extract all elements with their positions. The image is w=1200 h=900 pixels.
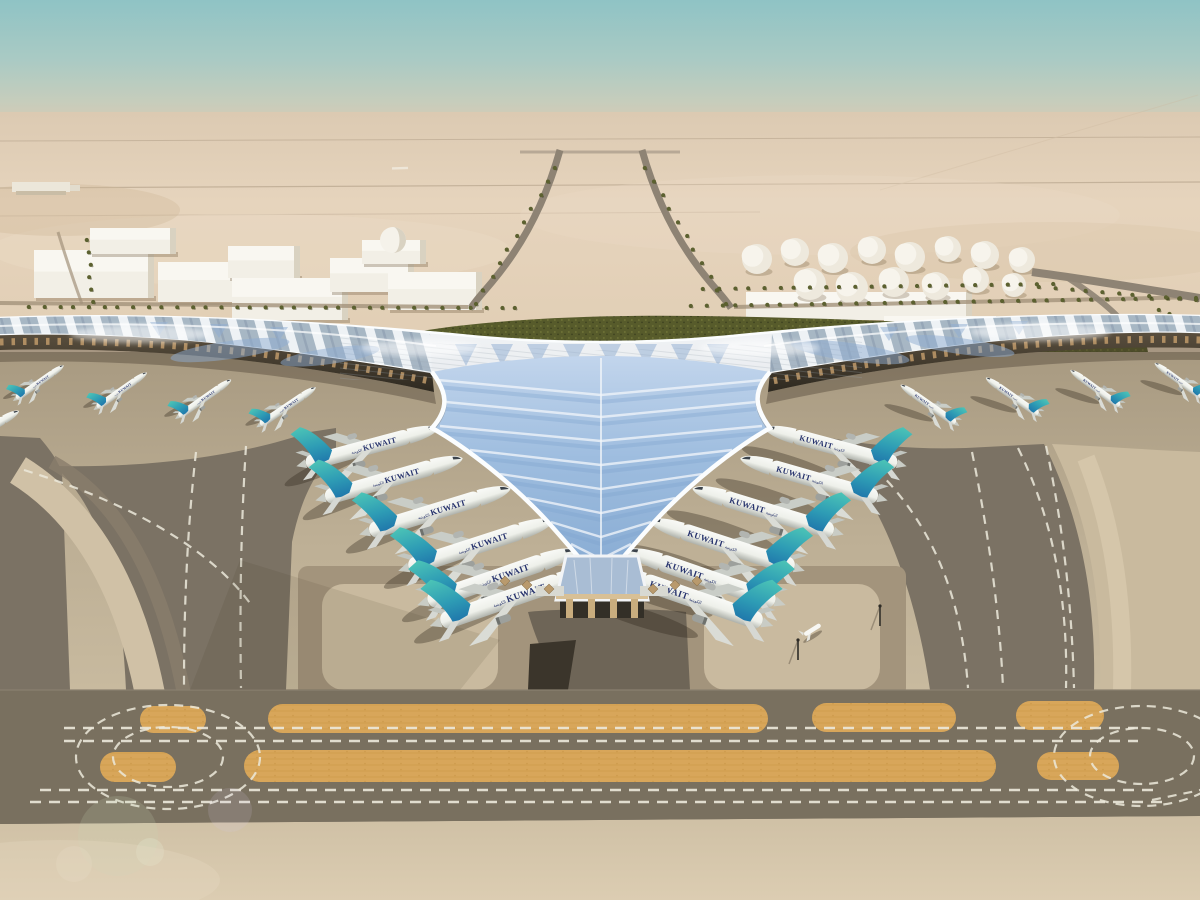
palm-tree	[522, 220, 526, 224]
palm-tree	[928, 284, 932, 288]
palm-tree	[724, 302, 728, 306]
palm-tree	[85, 238, 89, 242]
palm-tree	[484, 306, 488, 310]
palm-tree	[1117, 291, 1121, 295]
palm-tree	[973, 283, 977, 287]
palm-tree	[248, 305, 252, 309]
palm-tree	[794, 302, 798, 306]
palm-tree	[883, 301, 887, 305]
palm-tree	[87, 305, 91, 309]
palm-tree	[1051, 282, 1055, 286]
palm-tree	[899, 284, 903, 288]
palm-tree	[491, 275, 495, 279]
palm-tree	[1018, 282, 1022, 286]
palm-tree	[324, 306, 328, 310]
palm-tree	[643, 166, 647, 170]
warehouse-side	[966, 292, 972, 320]
palm-tree	[89, 288, 93, 292]
palm-tree	[87, 275, 91, 279]
entrance-beam	[556, 594, 648, 599]
tank-top	[963, 268, 982, 287]
palm-tree	[103, 305, 107, 309]
palm-tree	[808, 285, 812, 289]
palm-tree	[440, 306, 444, 310]
palm-tree	[870, 285, 874, 289]
mast-head	[878, 604, 881, 607]
palm-tree	[515, 234, 519, 238]
palm-tree	[481, 288, 485, 292]
palm-tree	[689, 304, 693, 308]
palm-tree	[159, 305, 163, 309]
palm-tree	[972, 299, 976, 303]
palm-tree	[505, 248, 509, 252]
palm-tree	[529, 207, 533, 211]
kuwait-airport-terminal-rendering: الكويتيةKUWAIT KUWAITالكويتية	[0, 0, 1200, 900]
palm-tree	[175, 305, 179, 309]
palm-tree	[219, 305, 223, 309]
palm-tree	[1121, 297, 1125, 301]
tank-top	[1002, 274, 1019, 291]
tank-top	[742, 245, 764, 267]
palm-tree	[1037, 285, 1041, 289]
palm-tree	[709, 275, 713, 279]
palm-tree	[87, 250, 91, 254]
palm-tree	[1054, 286, 1058, 290]
tank-top	[895, 243, 917, 265]
palm-tree	[838, 302, 842, 306]
palm-tree	[89, 263, 93, 267]
palm-tree	[539, 193, 543, 197]
palm-tree	[1060, 298, 1064, 302]
palm-tree	[988, 299, 992, 303]
palm-tree	[71, 305, 75, 309]
palm-tree	[1177, 297, 1181, 301]
palm-tree	[191, 305, 195, 309]
palm-tree	[1032, 298, 1036, 302]
palm-tree	[822, 302, 826, 306]
palm-tree	[469, 306, 473, 310]
palm-tree	[701, 287, 705, 291]
palm-tree	[1044, 298, 1048, 302]
mast-head	[796, 638, 799, 641]
palm-tree	[27, 305, 31, 309]
palm-tree	[676, 220, 680, 224]
palm-tree	[791, 286, 795, 290]
palm-tree	[553, 166, 557, 170]
palm-tree	[279, 305, 283, 309]
dome-building	[380, 227, 406, 253]
palm-tree	[749, 303, 753, 307]
palm-tree	[762, 286, 766, 290]
palm-tree	[911, 300, 915, 304]
palm-tree	[1100, 290, 1104, 294]
palm-tree	[1000, 299, 1004, 303]
tank-top	[858, 237, 878, 257]
palm-tree	[1133, 297, 1137, 301]
palm-tree	[899, 301, 903, 305]
warehouse-roof	[388, 272, 482, 289]
warehouse-side	[148, 250, 154, 298]
airport-aerial-rendering: الكويتيةKUWAIT KUWAITالكويتية	[0, 0, 1200, 900]
palm-tree	[59, 305, 63, 309]
palm-tree	[1070, 288, 1074, 292]
palm-tree	[456, 306, 460, 310]
palm-tree	[147, 305, 151, 309]
tank-top	[781, 239, 801, 259]
palm-tree	[661, 193, 665, 197]
palm-tree	[733, 303, 737, 307]
palm-tree	[667, 207, 671, 211]
tank-top	[971, 242, 991, 262]
palm-tree	[264, 305, 268, 309]
palm-tree	[500, 306, 504, 310]
palm-tree	[746, 286, 750, 290]
palm-tree	[308, 305, 312, 309]
warehouse-side	[420, 240, 426, 264]
palm-tree	[396, 306, 400, 310]
palm-tree	[691, 248, 695, 252]
palm-tree	[943, 300, 947, 304]
tank-top	[818, 244, 840, 266]
right-stand-block	[704, 584, 880, 690]
unpaved-strip	[100, 752, 176, 782]
palm-tree	[1077, 298, 1081, 302]
palm-tree	[115, 305, 119, 309]
tank-top	[935, 237, 954, 256]
palm-tree	[700, 261, 704, 265]
palm-tree	[779, 286, 783, 290]
palm-tree	[203, 305, 207, 309]
palm-tree	[1084, 289, 1088, 293]
palm-tree	[1089, 298, 1093, 302]
palm-tree	[778, 302, 782, 306]
palm-tree	[474, 302, 478, 306]
palm-tree	[960, 283, 964, 287]
palm-tree	[513, 306, 517, 310]
warehouse-side	[294, 246, 300, 278]
palm-tree	[765, 303, 769, 307]
palm-tree	[1164, 295, 1168, 299]
palm-tree	[546, 180, 550, 184]
palm-tree	[956, 300, 960, 304]
palm-tree	[336, 306, 340, 310]
palm-tree	[989, 283, 993, 287]
palm-tree	[368, 306, 372, 310]
entrance-glass	[556, 556, 648, 600]
palm-tree	[733, 286, 737, 290]
warehouse-side	[170, 228, 176, 254]
palm-tree	[1157, 308, 1161, 312]
palm-tree	[853, 285, 857, 289]
palm-tree	[685, 234, 689, 238]
tunnel-entrance	[528, 640, 576, 690]
palm-tree	[867, 301, 871, 305]
palm-tree	[854, 301, 858, 305]
palm-tree	[1016, 299, 1020, 303]
palm-tree	[1105, 297, 1109, 301]
palm-tree	[498, 261, 502, 265]
palm-tree	[715, 288, 719, 292]
palm-tree	[652, 180, 656, 184]
palm-tree	[352, 306, 356, 310]
palm-tree	[944, 283, 948, 287]
warehouse-roof	[228, 246, 300, 260]
palm-tree	[705, 304, 709, 308]
tank-top	[794, 269, 817, 292]
palm-tree	[131, 305, 135, 309]
palm-tree	[91, 300, 95, 304]
palm-tree	[1130, 293, 1134, 297]
palm-tree	[915, 284, 919, 288]
unpaved-strip	[244, 750, 996, 782]
tank-top	[879, 268, 901, 290]
warehouse-roof	[90, 228, 176, 240]
palm-tree	[837, 285, 841, 289]
palm-tree	[380, 306, 384, 310]
palm-tree	[824, 285, 828, 289]
palm-tree	[292, 305, 296, 309]
sky	[0, 0, 1200, 130]
palm-tree	[927, 300, 931, 304]
palm-tree	[882, 284, 886, 288]
palm-tree	[412, 306, 416, 310]
palm-tree	[810, 302, 814, 306]
palm-tree	[1194, 298, 1198, 302]
palm-tree	[1006, 283, 1010, 287]
palm-tree	[43, 305, 47, 309]
palm-tree	[235, 305, 239, 309]
palm-tree	[424, 306, 428, 310]
tank-top	[1009, 248, 1028, 267]
palm-tree	[1147, 294, 1151, 298]
tank-top	[922, 273, 942, 293]
